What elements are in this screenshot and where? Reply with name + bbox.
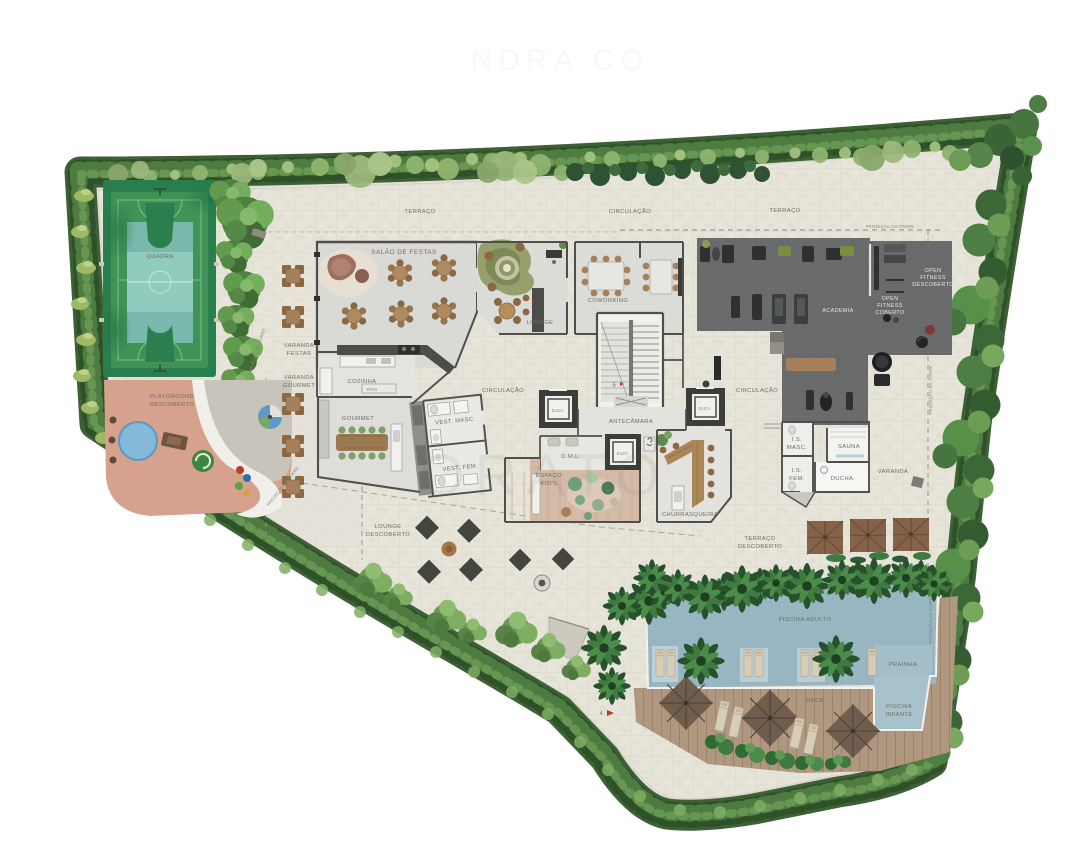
svg-text:OPEN: OPEN (882, 296, 899, 302)
svg-text:COWORKING: COWORKING (588, 298, 629, 304)
svg-text:SAUNA: SAUNA (838, 444, 860, 450)
svg-text:NDRA CO: NDRA CO (471, 44, 650, 77)
svg-text:I.S.: I.S. (792, 468, 802, 474)
svg-text:I.S.: I.S. (792, 437, 802, 443)
svg-text:GOURMET: GOURMET (342, 416, 374, 422)
svg-text:CIRCULAÇÃO: CIRCULAÇÃO (609, 208, 651, 215)
svg-text:ELEV.: ELEV. (699, 406, 712, 411)
svg-text:LOUNGE: LOUNGE (527, 320, 554, 326)
svg-text:COZINHA: COZINHA (348, 379, 377, 385)
svg-text:ELEV.: ELEV. (552, 408, 565, 413)
svg-text:FRIO: FRIO (367, 387, 378, 392)
svg-text:PROJEÇÃO DA TORRE: PROJEÇÃO DA TORRE (928, 366, 933, 415)
svg-text:MASC.: MASC. (787, 445, 807, 451)
svg-text:DESCOBERTO: DESCOBERTO (912, 282, 954, 288)
svg-text:DESCOBERTO: DESCOBERTO (150, 402, 194, 408)
svg-text:QUADRA: QUADRA (146, 254, 173, 260)
svg-text:FESTAS: FESTAS (287, 351, 312, 357)
svg-text:FEM.: FEM. (789, 476, 804, 482)
svg-text:DESCOBERTO: DESCOBERTO (738, 544, 782, 550)
svg-text:SALÃO DE FESTAS: SALÃO DE FESTAS (371, 247, 437, 256)
svg-text:PISCINA: PISCINA (886, 704, 912, 710)
svg-text:DECK: DECK (806, 698, 824, 704)
svg-text:PROJEÇÃO DA TORRE: PROJEÇÃO DA TORRE (928, 596, 933, 645)
svg-text:CHURRASQUEIRA: CHURRASQUEIRA (662, 512, 718, 518)
svg-text:PLAYGROUND: PLAYGROUND (150, 394, 194, 400)
svg-text:TERRAÇO: TERRAÇO (404, 209, 435, 215)
svg-text:PROJEÇÃO DA TORRE: PROJEÇÃO DA TORRE (866, 224, 915, 229)
svg-text:CIRCULAÇÃO: CIRCULAÇÃO (482, 387, 524, 394)
svg-text:INFANTE: INFANTE (885, 712, 912, 718)
svg-text:PISCINA ADULTO: PISCINA ADULTO (779, 617, 832, 623)
svg-text:COBERTO: COBERTO (875, 310, 904, 316)
svg-text:DESCOBERTO: DESCOBERTO (366, 532, 410, 538)
svg-text:PRAINHA: PRAINHA (889, 662, 918, 668)
svg-text:FITNESS: FITNESS (920, 275, 946, 281)
svg-text:ACADEMIA: ACADEMIA (822, 308, 853, 314)
svg-text:DUCHA: DUCHA (831, 476, 854, 482)
svg-text:OPEN: OPEN (925, 268, 942, 274)
svg-text:GOURMET: GOURMET (283, 383, 315, 389)
svg-text:VARANDA: VARANDA (284, 343, 314, 349)
svg-text:TERRAÇO: TERRAÇO (744, 536, 775, 542)
svg-text:ANTECÂMARA: ANTECÂMARA (609, 418, 653, 425)
svg-text:ORATO: ORATO (420, 443, 671, 508)
svg-text:CIRCULAÇÃO: CIRCULAÇÃO (736, 387, 778, 394)
svg-text:4: 4 (600, 711, 603, 717)
svg-text:TERRAÇO: TERRAÇO (769, 208, 800, 214)
svg-text:VARANDA: VARANDA (284, 375, 314, 381)
svg-text:LOUNGE: LOUNGE (375, 524, 402, 530)
svg-text:VARANDA: VARANDA (878, 469, 908, 475)
svg-text:FITNESS: FITNESS (877, 303, 903, 309)
